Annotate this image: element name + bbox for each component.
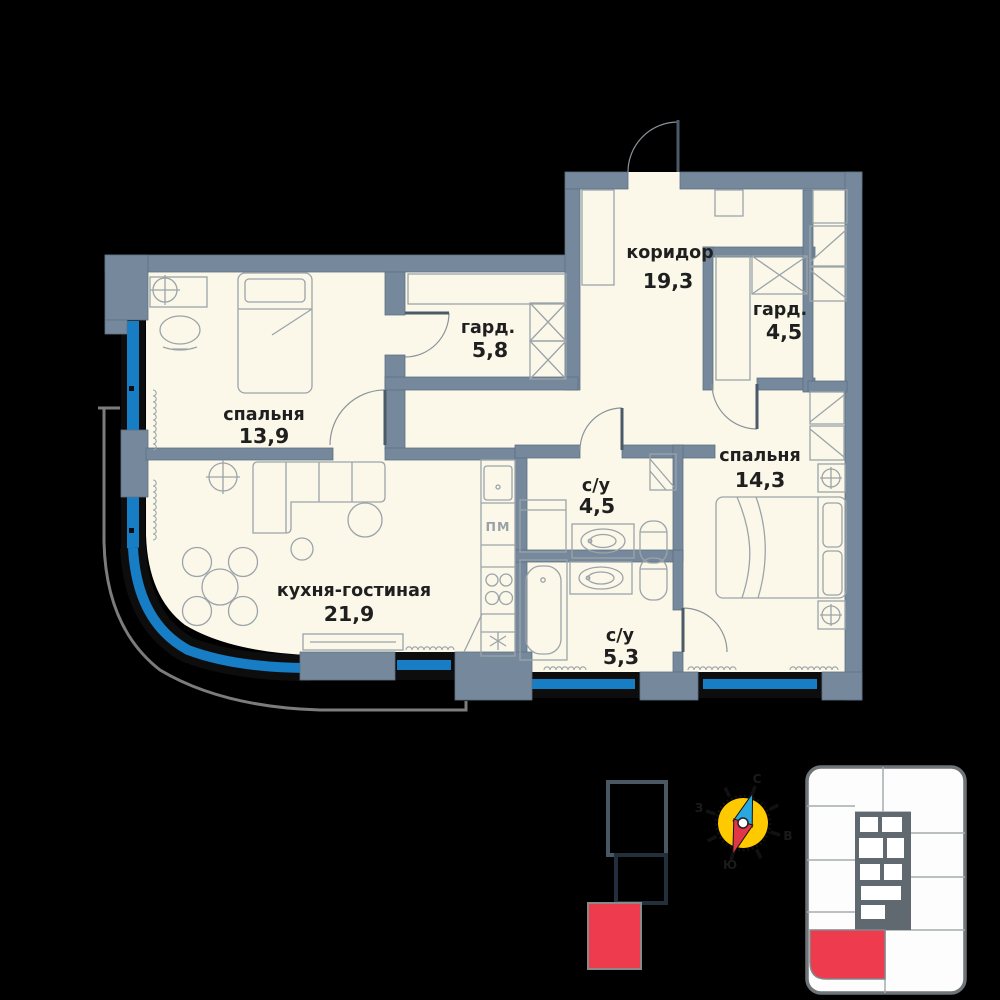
wall-bath1-top-left <box>515 445 580 458</box>
dishwasher-label: ПМ <box>486 519 511 534</box>
room-label-wardrobe2: гард. <box>753 300 807 320</box>
room-area-corridor: 19,3 <box>643 269 694 293</box>
building-footprint <box>807 767 965 993</box>
room-area-wardrobe1: 5,8 <box>472 338 508 362</box>
wall-pier-bottom-right <box>822 672 862 700</box>
wall-shaft-channel <box>803 190 813 392</box>
wall-closet-stub <box>808 381 847 392</box>
room-label-kitchen: кухня-гостиная <box>277 581 431 601</box>
wall-pier-kitchen-bottom <box>300 652 395 680</box>
room-label-bedroom2: спальня <box>719 446 800 466</box>
room-area-wardrobe2: 4,5 <box>766 320 802 344</box>
window-glass-kitchen <box>397 660 451 670</box>
room-label-bath2: с/у <box>606 626 635 646</box>
compass-north-label: С <box>753 772 762 786</box>
window-glass-left-1 <box>127 321 139 430</box>
wall-pier-topleft <box>105 255 148 320</box>
compass-south-label: Ю <box>723 858 737 872</box>
highlighted-apartment-unit <box>810 930 885 979</box>
screenshot-canvas: ПМ <box>0 0 1000 1000</box>
window-mullion <box>129 528 134 533</box>
wall-bath-right-upper <box>673 445 683 558</box>
section-outline-middle <box>616 855 666 903</box>
window-mullion <box>129 386 134 391</box>
room-area-bath1: 4,5 <box>579 494 615 518</box>
wall-bath2-right <box>673 550 683 610</box>
window-glass-bath2 <box>532 679 635 689</box>
wall-top-corridor-right <box>680 172 862 189</box>
room-label-bath1: с/у <box>582 476 611 496</box>
wall-right <box>845 172 862 700</box>
wall-hall-kitchen <box>385 448 517 460</box>
wall-pier-step <box>105 320 127 334</box>
room-area-bedroom2: 14,3 <box>735 468 786 492</box>
floor-plan-image: ПМ <box>0 0 1000 1000</box>
entrance-threshold <box>628 172 680 190</box>
wall-bath2-right-stub <box>673 652 683 672</box>
section-highlight-red <box>588 903 641 969</box>
section-outline-top <box>608 782 666 855</box>
wall-bedroom1-kitchen <box>146 448 333 460</box>
compass-icon: С В Ю З <box>694 772 793 872</box>
room-area-bedroom1: 13,9 <box>239 424 290 448</box>
wall-top-left-wing <box>105 255 578 272</box>
room-label-corridor: коридор <box>626 243 713 263</box>
window-glass-bedroom2 <box>703 679 817 689</box>
room-label-bedroom1: спальня <box>223 405 304 425</box>
compass-east-label: В <box>783 829 792 843</box>
wall-corridor-left <box>565 189 580 390</box>
wall-bath1-top-right <box>622 445 715 458</box>
room-label-wardrobe1: гард. <box>461 318 515 338</box>
wall-bedroom1-right-lower <box>385 355 405 450</box>
wall-bedroom1-right-upper <box>385 272 405 315</box>
room-area-bath2: 5,3 <box>603 645 639 669</box>
wall-pier-left-mid <box>121 430 148 497</box>
wall-pier-bottom-mid <box>640 672 698 700</box>
wall-top-corridor-left <box>565 172 628 189</box>
wall-wardrobe2-left <box>703 247 713 390</box>
room-area-kitchen: 21,9 <box>324 602 375 626</box>
compass-west-label: З <box>695 801 704 815</box>
position-diagram <box>588 782 666 969</box>
entrance-door <box>628 120 678 172</box>
